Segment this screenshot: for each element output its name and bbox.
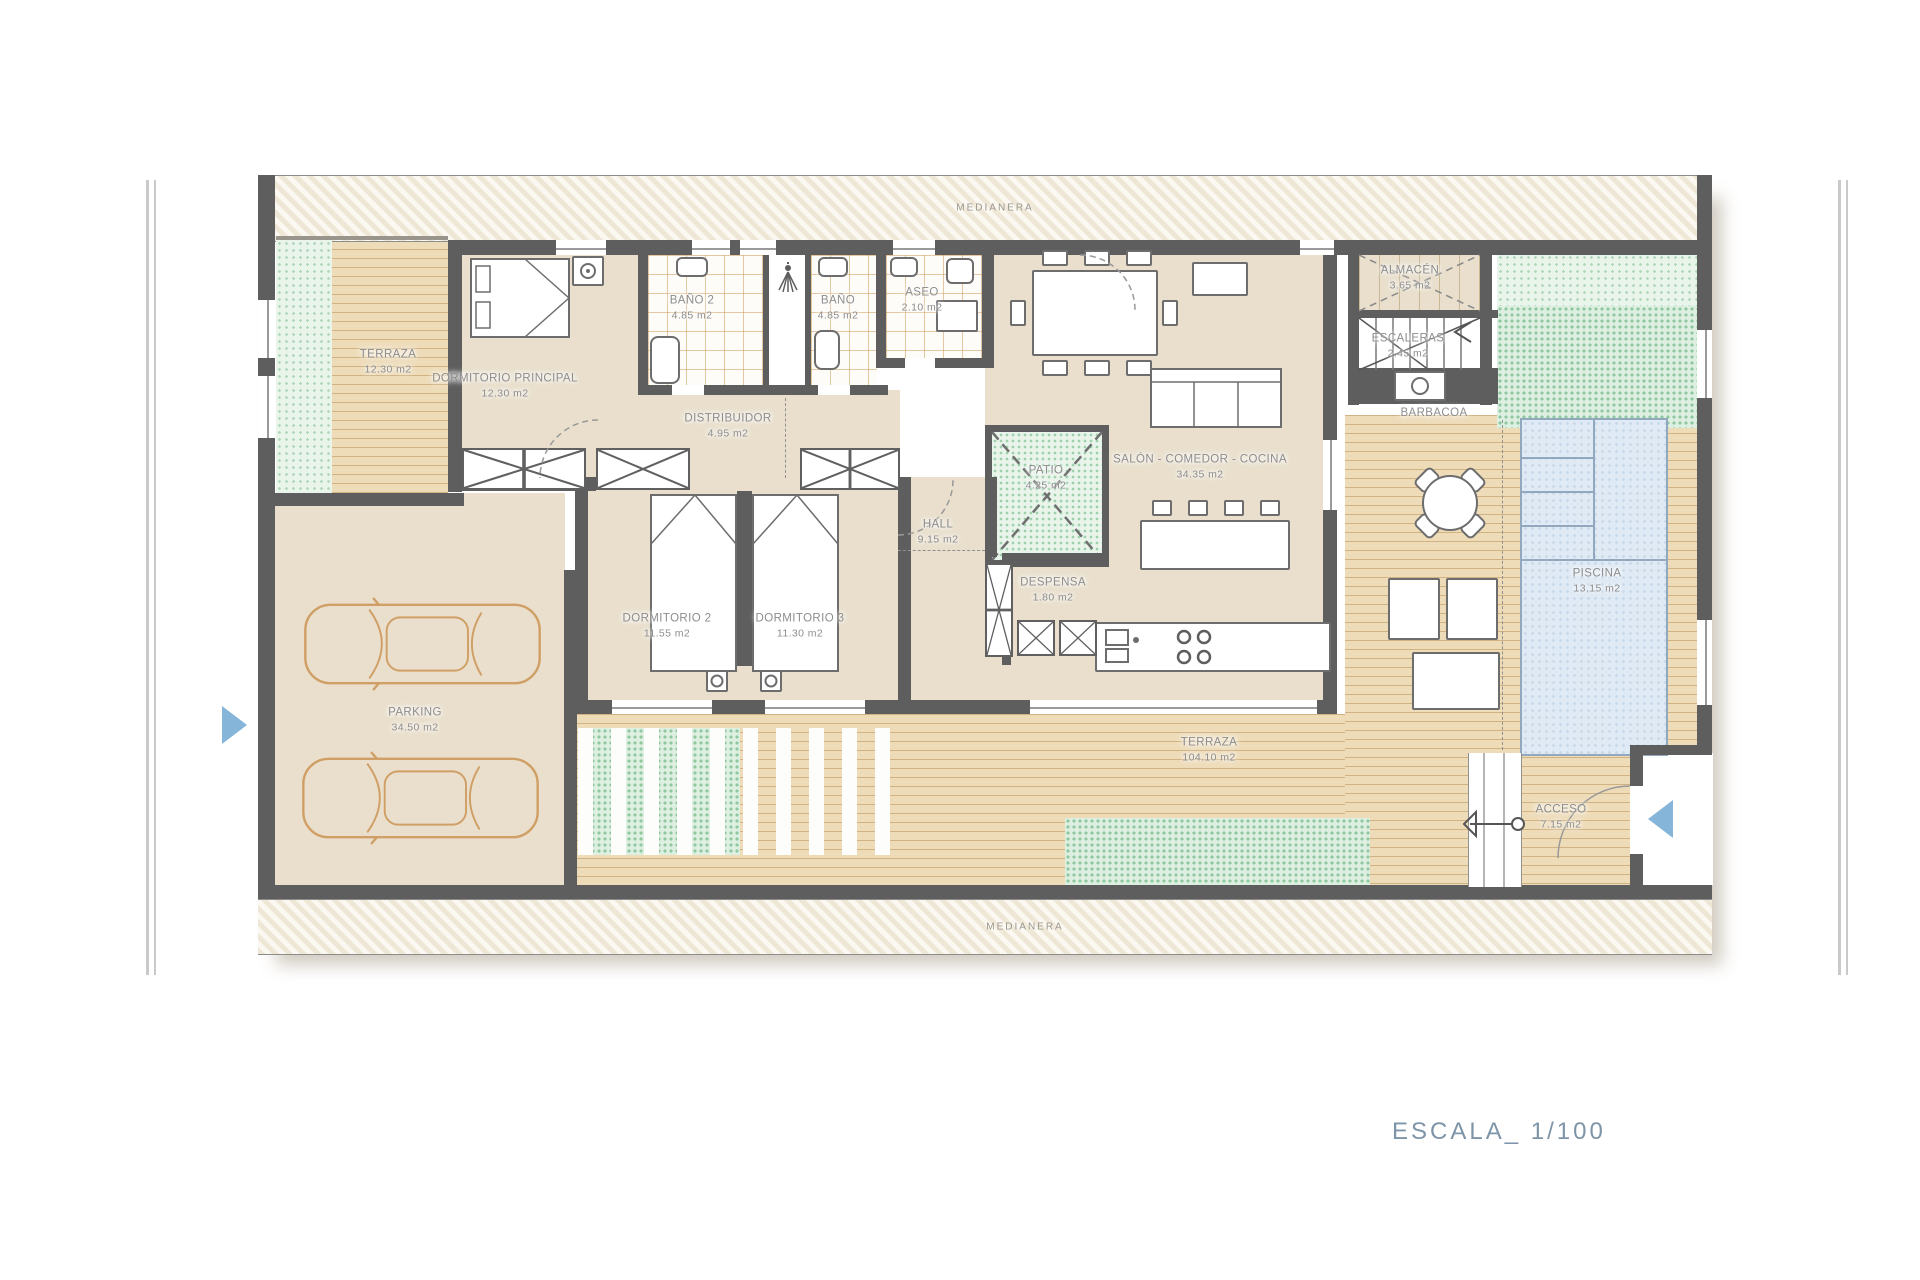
car-icon — [298, 752, 543, 844]
room-label-hall: HALL9.15 m2 — [918, 517, 959, 548]
room-label-almacen: ALMACÉN3.65 m2 — [1381, 263, 1439, 294]
door-aseo — [905, 358, 935, 368]
sink-aseo-icon — [890, 257, 918, 277]
room-label-piscina: PISCINA13.15 m2 — [1573, 566, 1622, 597]
cabinet-icon-1 — [985, 563, 1013, 657]
room-label-barbacoa: BARBACOA — [1400, 405, 1467, 421]
wall-garage-top — [258, 493, 464, 506]
toilet-aseo-icon — [946, 258, 974, 284]
lounger-icon — [1446, 578, 1498, 640]
lawn-on-terrace — [1065, 818, 1370, 887]
stove-icon — [1172, 626, 1216, 668]
shower-icon — [776, 262, 800, 298]
patio-court — [985, 425, 1109, 567]
sheet-border-right-outer — [1838, 180, 1841, 975]
gate-icon — [1462, 804, 1528, 844]
wardrobe-icon-3 — [800, 448, 900, 490]
wardrobe-icon-2 — [596, 448, 690, 490]
window-top-3 — [740, 240, 776, 255]
garden-band-topright — [1497, 306, 1697, 428]
dining-chair-icon — [1042, 360, 1068, 376]
cabinet-icon-2 — [1017, 620, 1055, 656]
window-plot-left-2 — [258, 376, 275, 438]
wall-shower-right — [805, 240, 811, 390]
wall-garage-right — [564, 570, 577, 887]
wall-stairs-mid — [1348, 310, 1498, 318]
wall-bano2-left — [638, 240, 648, 395]
room-label-terraza-big: TERRAZA104.10 m2 — [1181, 735, 1237, 766]
stool-icon — [1260, 500, 1280, 516]
room-label-terraza-small: TERRAZA12.30 m2 — [360, 347, 416, 378]
wall-access-step — [1630, 745, 1712, 755]
sheet-border-left-inner — [154, 180, 156, 975]
dash-line — [1502, 420, 1503, 750]
door-bano — [818, 385, 850, 395]
lounger-icon — [1388, 578, 1440, 640]
wall-aseo-right — [982, 240, 994, 368]
garden-strip-left — [276, 240, 332, 493]
dash-line — [785, 398, 786, 478]
kitchen-sink-icon — [1104, 628, 1144, 666]
sheet-border-right-inner — [1846, 180, 1848, 975]
patio-diagonals-icon — [992, 432, 1102, 560]
sheet-border-left-outer — [146, 180, 149, 975]
dining-chair-icon — [1162, 300, 1178, 326]
room-label-dormitorio-principal: DORMITORIO PRINCIPAL12.30 m2 — [432, 371, 578, 402]
pergola-slats — [578, 728, 908, 855]
room-label-bano: BAÑO4.85 m2 — [818, 293, 859, 324]
window-plot-left-1 — [258, 300, 275, 358]
sink-bano2-icon — [676, 257, 708, 277]
window-top-1 — [556, 240, 606, 255]
party-wall-label-bottom: MEDIANERA — [986, 922, 1063, 933]
car-icon — [300, 598, 545, 690]
window-top-4 — [893, 240, 935, 255]
room-label-dormitorio-2: DORMITORIO 211.55 m2 — [623, 611, 712, 642]
toilet-bano-icon — [814, 330, 840, 370]
round-table-icon — [1408, 461, 1492, 545]
room-label-acceso: ACCESO7.15 m2 — [1536, 802, 1587, 833]
door-bano2 — [672, 385, 704, 395]
lamp3-icon — [764, 674, 778, 688]
dining-chair-icon — [1126, 360, 1152, 376]
wall-plot-left — [258, 175, 275, 899]
window-plot-right-1 — [1697, 330, 1712, 398]
bed-dorm2-icon — [650, 494, 737, 672]
window-dorm2 — [612, 700, 712, 714]
party-wall-label-top: MEDIANERA — [956, 203, 1033, 214]
wall-shower-left — [763, 240, 769, 390]
bbq-basin-icon — [1410, 376, 1430, 396]
window-plot-right-2 — [1697, 620, 1712, 705]
lounger-icon — [1412, 652, 1500, 710]
bed-principal-icon — [470, 258, 570, 338]
stool-icon — [1224, 500, 1244, 516]
door-salon-terrace — [1323, 440, 1337, 510]
wall-hall-salon — [985, 477, 997, 557]
wall-aseo-bottom — [876, 358, 994, 368]
window-dorm3 — [765, 700, 865, 714]
nightstand-lamp-icon — [579, 262, 597, 280]
room-label-dormitorio-3: DORMITORIO 311.30 m2 — [756, 611, 845, 642]
wall-plot-bottom — [258, 885, 1712, 899]
glass-door-salon — [1030, 700, 1317, 714]
room-label-bano-2: BAÑO 24.85 m2 — [670, 293, 715, 324]
door-swing-dormP — [540, 420, 598, 478]
plan: MEDIANERA MEDIANERA ESCALA_ 1/100 TERRAZ… — [0, 0, 1920, 1280]
bed-dorm3-icon — [752, 494, 839, 672]
wall-house-left — [448, 240, 462, 492]
window-top-2 — [692, 240, 730, 255]
room-label-parking: PARKING34.50 m2 — [388, 705, 442, 736]
wall-bano-right — [876, 240, 886, 368]
wall-dorm-divider — [737, 491, 752, 666]
stool-icon — [1152, 500, 1172, 516]
room-label-despensa: DESPENSA1.80 m2 — [1020, 575, 1086, 606]
room-label-salon-comedor-cocina: SALÓN - COMEDOR - COCINA34.35 m2 — [1113, 452, 1287, 483]
wall-despensa-top — [1002, 553, 1106, 562]
room-label-aseo: ASEO2.10 m2 — [902, 285, 943, 316]
room-label-escaleras: ESCALERAS2.45 m2 — [1372, 331, 1445, 362]
room-label-distribuidor: DISTRIBUIDOR4.95 m2 — [684, 411, 771, 442]
dining-chair-icon — [1010, 300, 1026, 326]
door-swing-salon — [1080, 255, 1135, 310]
cabinet-icon-3 — [1059, 620, 1097, 656]
window-top-5 — [1300, 240, 1334, 255]
dash-line — [898, 550, 985, 551]
terrace-top-edge — [276, 236, 448, 240]
sideboard-icon — [1192, 262, 1248, 296]
dining-chair-icon — [1042, 250, 1068, 266]
stool-icon — [1188, 500, 1208, 516]
toilet-bano2-icon — [650, 336, 680, 384]
dining-chair-icon — [1084, 360, 1110, 376]
kitchen-island-icon — [1140, 520, 1290, 570]
sink-bano-icon — [818, 257, 848, 277]
sofa-icon — [1150, 368, 1282, 428]
party-wall-bottom — [258, 899, 1712, 955]
entry-arrow-icon-right — [1648, 800, 1673, 838]
entry-door-gap — [1630, 786, 1643, 854]
room-label-patio: PATIO4.25 m2 — [1026, 463, 1067, 494]
lamp2-icon — [710, 674, 724, 688]
scale-label: ESCALA_ 1/100 — [1392, 1118, 1606, 1146]
entry-arrow-icon-left — [222, 706, 247, 744]
